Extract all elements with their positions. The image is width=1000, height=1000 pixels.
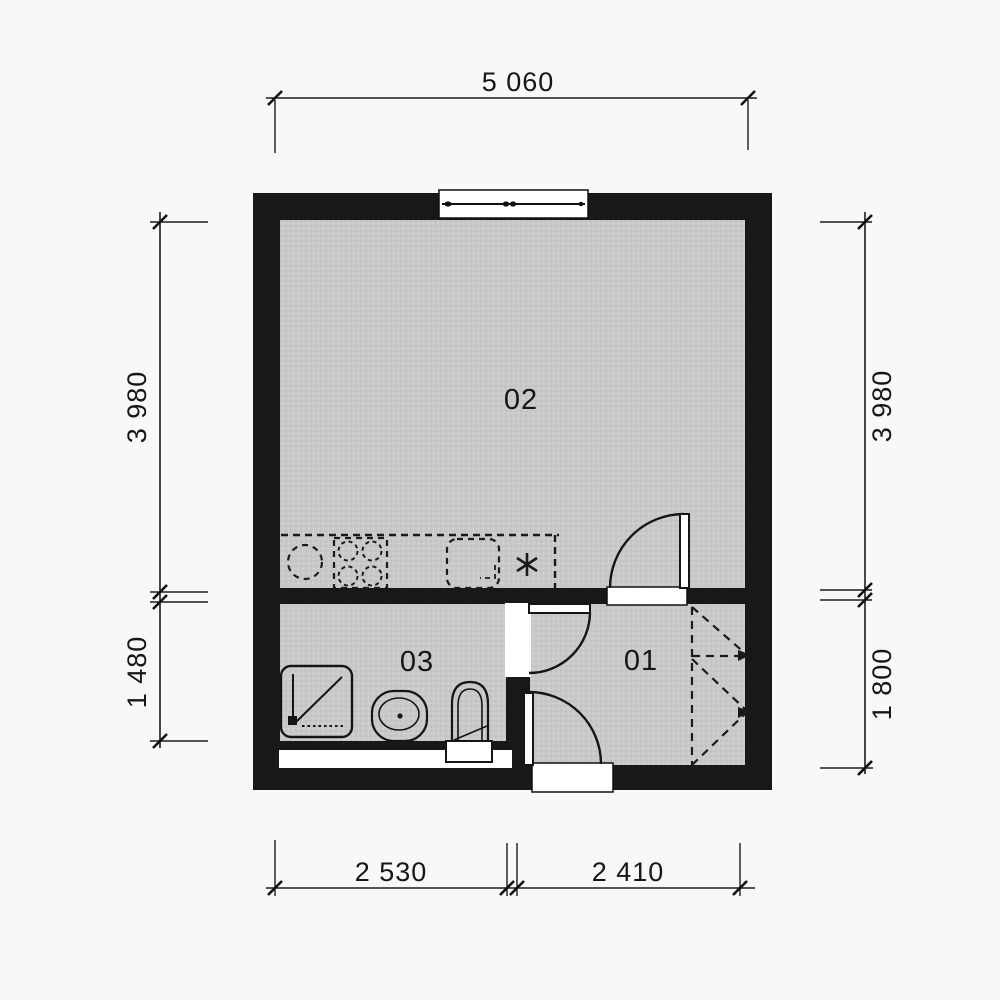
door-opening-03-01: [505, 603, 531, 677]
building: [253, 193, 772, 792]
dimension-right-lower-value: 1 800: [867, 648, 897, 721]
door-leaf: [529, 604, 590, 613]
window-mark: [445, 201, 452, 206]
toilet-cistern: [446, 741, 492, 762]
room-01-label: 01: [624, 645, 658, 677]
dimension-left-lower-value: 1 480: [122, 636, 152, 709]
entrance-door-opening: [532, 763, 613, 792]
room-02-label: 02: [504, 384, 538, 416]
room-03-label: 03: [400, 646, 434, 678]
door-leaf: [524, 693, 533, 765]
dimension-bottom-right-value: 2 410: [592, 857, 665, 887]
window-mark: [510, 201, 516, 206]
window-mark: [579, 202, 584, 206]
dimension-right-upper-value: 3 980: [867, 370, 897, 443]
dimension-left-upper-value: 3 980: [122, 371, 152, 444]
door-opening-02-01: [607, 587, 687, 605]
room-01-floor: [530, 604, 745, 765]
dimension-top-value: 5 060: [482, 67, 555, 97]
room-03-floor: [280, 604, 506, 741]
window-mark: [503, 201, 509, 206]
shower-drain: [288, 716, 297, 725]
floor-plan-page: 02 03 01 5 060 3 980 1 480 3 980 1: [0, 0, 1000, 1000]
door-leaf: [680, 514, 689, 588]
floor-plan-drawing: 02 03 01 5 060 3 980 1 480 3 980 1: [0, 0, 1000, 1000]
dimension-bottom-left-value: 2 530: [355, 857, 428, 887]
window-icon: [439, 190, 588, 218]
